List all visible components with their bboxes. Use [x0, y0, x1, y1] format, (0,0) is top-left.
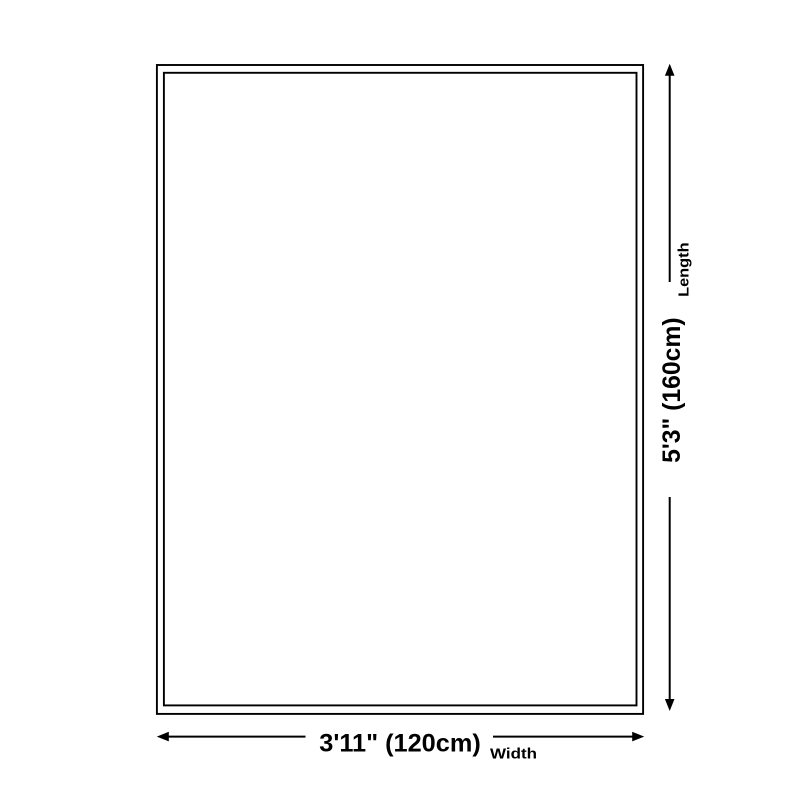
svg-text:Width: Width [490, 746, 537, 762]
svg-text:3'11" (120cm): 3'11" (120cm) [319, 729, 481, 757]
svg-text:5'3" (160cm): 5'3" (160cm) [658, 317, 686, 463]
svg-text:Length: Length [677, 242, 693, 297]
